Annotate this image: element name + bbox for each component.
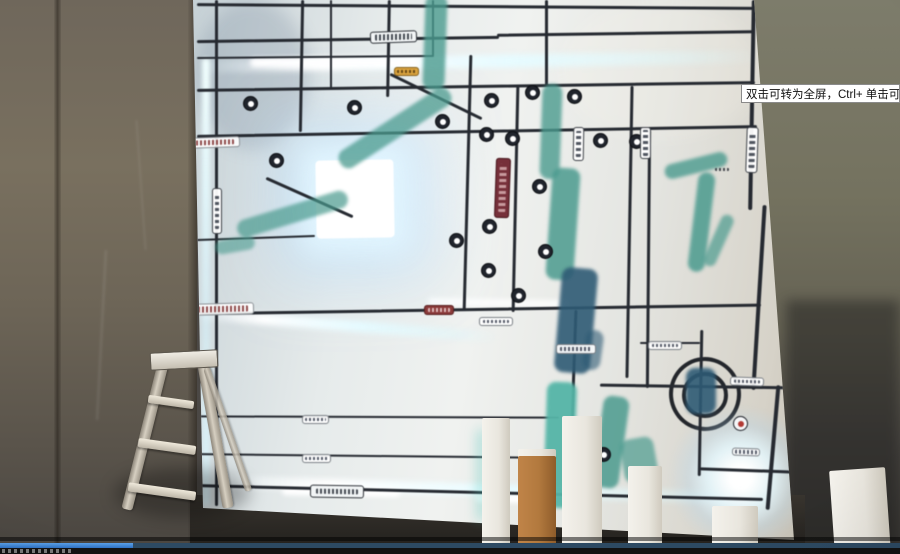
wall-seam	[54, 0, 61, 554]
road-line	[766, 385, 781, 510]
map-label-pill	[310, 485, 364, 499]
road-line	[512, 86, 520, 312]
poi-logo-dot	[537, 184, 543, 190]
illegible-label-text	[734, 379, 760, 384]
map-poi-icon	[733, 416, 748, 431]
road-line	[197, 3, 753, 10]
map-label-pill	[394, 67, 419, 76]
illegible-label-text	[483, 320, 509, 324]
map-poi-icon	[243, 96, 258, 111]
poi-logo-dot	[598, 138, 604, 144]
poi-logo-dot	[454, 238, 460, 244]
map-label-pill	[745, 127, 759, 173]
poi-logo-dot	[248, 101, 254, 107]
map-poi-icon	[532, 179, 547, 194]
illegible-label-text	[397, 70, 416, 74]
illegible-label-text	[560, 347, 591, 351]
poi-logo-dot	[572, 94, 578, 100]
glow-band-top-bright	[250, 58, 420, 67]
poi-logo-dot	[486, 268, 492, 274]
map-poi-icon	[435, 114, 450, 129]
map-label-pill	[712, 166, 732, 173]
map-poi-icon	[481, 263, 496, 278]
river-segment	[335, 84, 455, 172]
fullscreen-tooltip-text: 双击可转为全屏，Ctrl+ 单击可转为	[746, 86, 900, 102]
map-poi-icon	[482, 219, 497, 234]
poi-logo-dot	[487, 224, 493, 230]
illegible-label-text	[305, 457, 327, 461]
map-label-pill	[573, 127, 585, 161]
river-segment	[545, 167, 581, 281]
ladder-top-cap	[150, 349, 219, 371]
map-label-pill	[494, 158, 511, 218]
illegible-label-text	[198, 306, 247, 312]
fullscreen-tooltip: 双击可转为全屏，Ctrl+ 单击可转为	[741, 84, 900, 103]
map-poi-icon	[347, 100, 362, 115]
poi-logo-dot	[510, 136, 516, 142]
foam-column	[562, 416, 602, 554]
map-poi-icon	[449, 233, 464, 248]
map-label-pill	[424, 305, 454, 315]
map-poi-icon	[479, 127, 494, 142]
illegible-label-text	[215, 193, 219, 230]
road-line	[386, 0, 391, 97]
foam-column	[482, 418, 510, 554]
road-line	[197, 81, 755, 92]
river-segment	[422, 0, 447, 90]
illegible-label-text	[498, 164, 507, 213]
map-label-pill	[370, 30, 417, 44]
poi-logo-dot	[352, 105, 358, 111]
map-label-pill	[648, 341, 682, 350]
illegible-label-text	[735, 450, 756, 454]
illegible-label-text	[375, 34, 412, 40]
poi-logo-dot	[274, 158, 280, 164]
map-label-pill	[640, 127, 651, 159]
poi-logo-dot	[440, 119, 446, 125]
illegible-label-text	[652, 344, 678, 348]
player-bottom-strip	[0, 548, 900, 554]
road-line	[751, 205, 766, 390]
poi-logo-dot	[489, 98, 495, 104]
map-poi-icon	[484, 93, 499, 108]
illegible-label-text	[192, 139, 235, 145]
road-line	[330, 0, 332, 90]
poi-logo-dot	[738, 421, 744, 427]
road-line	[545, 0, 548, 87]
road-line	[497, 30, 753, 37]
illegible-label-text	[305, 418, 326, 422]
illegible-label-text	[316, 488, 359, 494]
map-label-pill	[192, 302, 254, 316]
map-label-pill	[730, 376, 764, 386]
map-label-pill	[302, 454, 331, 463]
map-poi-icon	[593, 133, 608, 148]
river-segment	[539, 84, 562, 180]
map-poi-icon	[567, 89, 582, 104]
illegible-label-text	[428, 308, 451, 312]
road-line	[700, 467, 796, 473]
clipped-control-text	[2, 549, 74, 553]
map-poi-icon	[505, 131, 520, 146]
illegible-label-text	[749, 131, 756, 168]
road-line	[197, 36, 499, 43]
map-poi-icon	[511, 288, 526, 303]
map-poi-icon	[269, 153, 284, 168]
river-segment	[686, 368, 716, 414]
player-bar-shadow	[0, 537, 900, 541]
map-label-pill	[302, 415, 329, 424]
map-label-pill	[556, 344, 596, 354]
road-line	[197, 125, 757, 138]
illegible-label-text	[715, 168, 730, 171]
illegible-label-text	[576, 131, 581, 158]
video-viewport[interactable]: 双击可转为全屏，Ctrl+ 单击可转为	[0, 0, 900, 554]
poi-logo-dot	[634, 139, 640, 145]
poi-logo-dot	[516, 293, 522, 299]
map-label-pill	[212, 188, 222, 234]
road-line	[463, 55, 473, 311]
map-label-pill	[479, 317, 513, 326]
illegible-label-text	[643, 130, 648, 155]
poi-logo-dot	[530, 90, 536, 96]
map-poi-icon	[538, 244, 553, 259]
poi-logo-dot	[543, 249, 549, 255]
map-label-pill	[732, 448, 760, 457]
poi-logo-dot	[484, 132, 490, 138]
glow-band-left	[202, 58, 210, 506]
map-poi-icon	[525, 85, 540, 100]
